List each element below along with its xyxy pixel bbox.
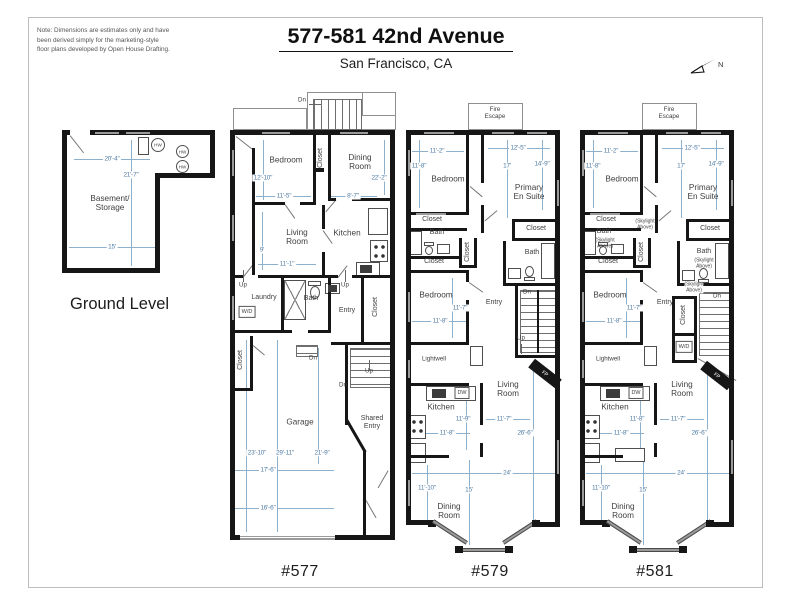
wall-segment bbox=[322, 205, 325, 229]
wall-segment bbox=[480, 383, 483, 425]
wall-segment bbox=[512, 238, 556, 241]
window bbox=[262, 132, 290, 134]
dim-living-h: 26'-6" bbox=[690, 430, 708, 437]
room-label-closet: Closet bbox=[700, 225, 720, 233]
room-label-closet: Closet bbox=[317, 148, 325, 168]
wall-segment bbox=[672, 360, 697, 363]
dim-basement-width: 20'-4" bbox=[103, 156, 121, 163]
dim-dining-h: 22'-2" bbox=[370, 175, 388, 182]
room-label-primary-581: Primary En Suite bbox=[688, 183, 719, 201]
washer-dryer: W/D bbox=[676, 341, 693, 353]
wall-segment bbox=[655, 135, 658, 183]
fixture bbox=[583, 443, 600, 463]
fixture bbox=[524, 277, 535, 281]
fixture bbox=[470, 346, 483, 366]
room-label-bath: Bath bbox=[430, 229, 444, 237]
wall-segment bbox=[459, 238, 462, 268]
wall-segment bbox=[654, 443, 657, 457]
wall-segment bbox=[390, 130, 395, 540]
room-label-bath: Bath bbox=[697, 248, 711, 256]
dim-primary-h2: 14'-9" bbox=[707, 161, 725, 168]
dim-garage-h1: 23'-10" bbox=[246, 450, 267, 457]
wall-segment bbox=[694, 296, 697, 362]
dim-living-h: 9' bbox=[258, 247, 265, 254]
window bbox=[416, 213, 446, 215]
window bbox=[232, 296, 234, 320]
dimension-line bbox=[533, 365, 534, 520]
wall-segment bbox=[580, 130, 585, 525]
fireplace-label: FP bbox=[713, 371, 722, 380]
wall-segment bbox=[532, 520, 540, 527]
wall-segment bbox=[503, 241, 506, 286]
fixture bbox=[368, 208, 388, 235]
stairs bbox=[699, 292, 730, 356]
wall-segment bbox=[328, 135, 331, 198]
window bbox=[232, 215, 234, 241]
fixture bbox=[370, 240, 388, 262]
page-subtitle: San Francisco, CA bbox=[340, 56, 453, 71]
fixture bbox=[437, 244, 450, 254]
fixture bbox=[606, 389, 620, 398]
wall-segment bbox=[252, 148, 255, 275]
fixture bbox=[425, 246, 433, 255]
room-label-bedroom-581: Bedroom bbox=[605, 174, 638, 183]
fixture bbox=[432, 389, 446, 398]
north-arrow-icon bbox=[690, 56, 718, 76]
dim-primary-w: 12'-5" bbox=[683, 145, 701, 152]
wall-segment bbox=[331, 342, 395, 345]
stair-label-dn: Dn bbox=[309, 356, 317, 363]
wall-segment bbox=[230, 275, 243, 278]
dim-primary-h2: 14'-9" bbox=[533, 161, 551, 168]
dim-width-total: 24' bbox=[676, 470, 687, 477]
dim-primary-w: 12'-5" bbox=[509, 145, 527, 152]
hw-heater-label: HW bbox=[179, 164, 187, 169]
dim-primary-h1: 17' bbox=[502, 163, 513, 170]
fixture bbox=[682, 270, 695, 281]
wall-segment bbox=[648, 238, 651, 268]
fixture bbox=[644, 346, 657, 366]
room-label-bath: Bath bbox=[525, 249, 539, 257]
north-label: N bbox=[718, 60, 723, 69]
dim-dining-w2: 15' bbox=[638, 487, 649, 494]
wall-segment bbox=[583, 270, 641, 273]
wall-segment bbox=[629, 546, 637, 553]
room-label-garage: Garage bbox=[286, 417, 313, 426]
dim-basement-height: 21'-7" bbox=[122, 172, 140, 179]
room-label-closet: Closet bbox=[598, 258, 618, 266]
hw-heater-label: HW bbox=[179, 149, 187, 154]
wall-segment bbox=[481, 135, 484, 183]
fixture bbox=[138, 137, 149, 155]
wall-segment bbox=[672, 333, 697, 336]
wall-segment bbox=[409, 455, 449, 458]
dim-living-w: 11'-1" bbox=[278, 261, 296, 268]
wall-segment bbox=[686, 219, 730, 222]
window bbox=[492, 132, 514, 134]
wall-segment bbox=[409, 342, 469, 345]
dimension-line bbox=[234, 508, 334, 509]
wall-segment bbox=[655, 205, 658, 233]
wall-segment bbox=[583, 383, 643, 386]
north-arrow: N bbox=[690, 56, 718, 81]
wall-segment bbox=[633, 238, 636, 268]
window bbox=[590, 213, 620, 215]
dim-living-h: 26'-6" bbox=[516, 430, 534, 437]
room-label-bath: Bath bbox=[597, 228, 611, 236]
wall-segment bbox=[459, 265, 477, 268]
room-label-closet: Closet bbox=[372, 297, 380, 317]
fixture bbox=[409, 443, 426, 463]
dim-kitchen-w: 11'-8" bbox=[612, 430, 630, 437]
wall-segment bbox=[230, 130, 235, 540]
room-label-bedroom-579: Bedroom bbox=[431, 174, 464, 183]
unit-label-579: #579 bbox=[471, 563, 509, 581]
dim-kitchen-h: 11'-9" bbox=[454, 416, 472, 423]
wall-segment bbox=[537, 290, 539, 353]
room-label-closet: Closet bbox=[638, 242, 646, 262]
dimension-line bbox=[318, 348, 319, 464]
wall-segment bbox=[480, 443, 483, 457]
decor bbox=[70, 130, 90, 135]
fixture bbox=[284, 280, 306, 320]
room-label-entry-579: Entry bbox=[486, 299, 502, 307]
dimension-line bbox=[601, 465, 602, 520]
wall-segment bbox=[686, 238, 730, 241]
dim-kitchen-w: 11'-8" bbox=[438, 430, 456, 437]
wall-segment bbox=[300, 202, 316, 205]
dim-basement-width2: 15' bbox=[107, 244, 118, 251]
wall-segment bbox=[583, 455, 623, 458]
dim-dining-w1: 11'-10" bbox=[591, 485, 612, 492]
wall-segment bbox=[503, 283, 560, 286]
wall-segment bbox=[505, 546, 513, 553]
window bbox=[557, 180, 559, 206]
skylight-note: (Skylight Above) bbox=[694, 258, 713, 269]
fire-escape-label: Fire Escape bbox=[485, 107, 506, 121]
structure-outline bbox=[362, 92, 396, 116]
direction-arrow bbox=[309, 104, 321, 105]
hw-heater-label: HW bbox=[154, 142, 162, 147]
fixture bbox=[508, 268, 521, 279]
wall-segment bbox=[352, 275, 395, 278]
window bbox=[408, 480, 410, 506]
dimension-line bbox=[593, 140, 594, 208]
room-label-closet: Closet bbox=[237, 350, 245, 370]
wall-segment bbox=[633, 265, 651, 268]
wall-segment bbox=[406, 130, 411, 525]
skylight-note: (Skylight Above) bbox=[595, 238, 614, 249]
window bbox=[240, 538, 335, 540]
window bbox=[731, 180, 733, 206]
wall-segment bbox=[361, 278, 364, 345]
dim-bedroom2-w: 11'-8" bbox=[431, 318, 449, 325]
dim-dining-w: 8'-7" bbox=[346, 193, 361, 200]
wall-segment bbox=[230, 330, 292, 333]
dim-bedroom2-w: 11'-8" bbox=[605, 318, 623, 325]
wall-segment bbox=[583, 342, 643, 345]
wall-segment bbox=[155, 175, 160, 273]
wall-segment bbox=[255, 202, 285, 205]
wall-segment bbox=[308, 330, 331, 333]
dimension-line bbox=[277, 340, 278, 532]
dim-primary-h1: 17' bbox=[676, 163, 687, 170]
stair-label-up: Up bbox=[517, 336, 525, 343]
wall-segment bbox=[466, 270, 469, 282]
dimension-line bbox=[469, 460, 470, 545]
room-label-shared-entry: Shared Entry bbox=[361, 415, 384, 431]
dim-dining-w2: 15' bbox=[464, 487, 475, 494]
wall-segment bbox=[512, 219, 515, 241]
dimension-line bbox=[707, 365, 708, 520]
wall-segment bbox=[686, 219, 689, 241]
wall-segment bbox=[515, 285, 518, 358]
skylight-note: (Skylight Above) bbox=[684, 282, 703, 293]
window bbox=[408, 292, 410, 322]
wall-segment bbox=[363, 450, 366, 540]
window bbox=[598, 132, 628, 134]
stair-label-dn: Dn bbox=[298, 98, 306, 105]
plan-title-ground: Ground Level bbox=[70, 295, 169, 313]
dim-living-w: 11'-7" bbox=[669, 416, 687, 423]
fixture bbox=[360, 265, 372, 273]
wall-segment bbox=[62, 268, 160, 273]
structure-outline bbox=[233, 108, 307, 130]
room-label-dining-581: Dining Room bbox=[611, 502, 634, 520]
room-label-lightwell: Lightwell bbox=[596, 357, 620, 364]
room-label-laundry: Laundry bbox=[251, 294, 276, 302]
direction-arrow bbox=[521, 344, 522, 354]
wall-segment bbox=[512, 219, 556, 222]
dimension-line bbox=[586, 473, 730, 474]
room-label-living-579: Living Room bbox=[497, 380, 519, 398]
room-label-living-581: Living Room bbox=[671, 380, 693, 398]
wall-segment bbox=[640, 135, 643, 215]
dimension-line bbox=[427, 465, 428, 520]
dim-bedroom2-h: 11'-7" bbox=[451, 305, 469, 312]
dim-width-total: 24' bbox=[502, 470, 513, 477]
wall-segment bbox=[281, 278, 284, 332]
dim-bedroom-w: 11'-2" bbox=[428, 148, 446, 155]
room-label-living-577: Living Room bbox=[286, 228, 308, 246]
bay-window bbox=[463, 548, 507, 552]
dim-bedroom2-h: 11'-7" bbox=[625, 305, 643, 312]
dim-garage-h3: 21'-9" bbox=[313, 450, 331, 457]
window bbox=[582, 480, 584, 506]
fixture bbox=[715, 243, 729, 279]
dim-bedroom-w: 11'-5" bbox=[275, 193, 293, 200]
washer-dryer: W/D bbox=[239, 306, 256, 318]
window bbox=[424, 132, 454, 134]
room-label-entry-577: Entry bbox=[339, 307, 355, 315]
room-label-bedroom2-579: Bedroom bbox=[419, 290, 452, 299]
dimension-line bbox=[263, 140, 264, 200]
dim-living-w: 11'-7" bbox=[495, 416, 513, 423]
wall-segment bbox=[328, 198, 336, 201]
page-header: 577-581 42nd Avenue San Francisco, CA bbox=[0, 24, 792, 73]
step-label-up: Up bbox=[341, 283, 349, 290]
wall-segment bbox=[481, 205, 484, 233]
direction-arrow bbox=[345, 270, 346, 282]
wall-segment bbox=[515, 355, 560, 358]
room-label-primary-579: Primary En Suite bbox=[514, 183, 545, 201]
window bbox=[666, 132, 688, 134]
wall-segment bbox=[409, 383, 469, 386]
stair-label-dn: Dn bbox=[523, 290, 531, 297]
room-label-basement: Basement/ Storage bbox=[90, 194, 129, 212]
dim-bedroom-h: 11'-8" bbox=[584, 163, 602, 170]
bay-window bbox=[637, 548, 681, 552]
room-label-bath-577: Bath bbox=[304, 295, 318, 303]
wall-segment bbox=[455, 546, 463, 553]
dimension-line bbox=[419, 140, 420, 208]
wall-segment bbox=[677, 241, 680, 286]
window bbox=[95, 132, 119, 134]
room-label-dining-577: Dining Room bbox=[348, 153, 371, 171]
unit-label-581: #581 bbox=[636, 563, 674, 581]
skylight-note: (Skylight Above) bbox=[635, 219, 654, 230]
room-label-closet: Closet bbox=[464, 242, 472, 262]
wall-segment bbox=[654, 383, 657, 425]
room-label-kitchen-577: Kitchen bbox=[333, 228, 360, 237]
wall-segment bbox=[313, 168, 324, 172]
fixture bbox=[541, 243, 555, 279]
fire-escape-label: Fire Escape bbox=[659, 107, 680, 121]
fixture bbox=[525, 266, 534, 277]
stair-label-dn: Dn bbox=[339, 383, 347, 390]
dimension-line bbox=[384, 140, 385, 195]
window bbox=[408, 150, 410, 176]
dim-bedroom-h: 12'-10" bbox=[252, 175, 273, 182]
dim-dining-w1: 11'-10" bbox=[417, 485, 438, 492]
stair-label-up: Up bbox=[365, 369, 373, 376]
fixture bbox=[699, 268, 708, 279]
window bbox=[126, 132, 150, 134]
room-label-lightwell: Lightwell bbox=[422, 357, 446, 364]
wall-segment bbox=[155, 173, 215, 178]
window bbox=[232, 150, 234, 176]
wall-segment bbox=[230, 388, 253, 391]
room-label-closet: Closet bbox=[424, 258, 444, 266]
dimension-line bbox=[412, 473, 556, 474]
dim-kitchen-h: 11'-8" bbox=[628, 416, 646, 423]
room-label-dining-579: Dining Room bbox=[437, 502, 460, 520]
window bbox=[557, 440, 559, 474]
window bbox=[340, 132, 368, 134]
wall-segment bbox=[466, 135, 469, 215]
window bbox=[582, 292, 584, 322]
room-label-kitchen-579: Kitchen bbox=[427, 402, 454, 411]
dishwasher: DW bbox=[455, 387, 470, 399]
page-title: 577-581 42nd Avenue bbox=[279, 24, 512, 52]
wall-segment bbox=[679, 546, 687, 553]
dim-garage-h2: 29'-11" bbox=[275, 450, 296, 457]
decor bbox=[691, 66, 704, 73]
dim-bedroom-h: 11'-8" bbox=[410, 163, 428, 170]
window bbox=[701, 132, 721, 134]
wall-segment bbox=[250, 336, 253, 390]
wall-segment bbox=[409, 270, 467, 273]
room-label-kitchen-581: Kitchen bbox=[601, 402, 628, 411]
dim-bedroom-w: 11'-2" bbox=[602, 148, 620, 155]
room-label-closet: Closet bbox=[526, 225, 546, 233]
direction-arrow bbox=[243, 270, 244, 282]
wall-segment bbox=[62, 130, 67, 273]
dim-garage-w1: 17'-6" bbox=[259, 467, 277, 474]
window bbox=[240, 536, 335, 538]
dimension-line bbox=[234, 470, 334, 471]
room-label-closet: Closet bbox=[680, 305, 688, 325]
fixture bbox=[328, 285, 337, 292]
room-label-closet: Closet bbox=[422, 216, 442, 224]
window bbox=[527, 132, 547, 134]
room-label-closet: Closet bbox=[596, 216, 616, 224]
dim-garage-w2: 16'-6" bbox=[259, 505, 277, 512]
room-label-entry-581: Entry bbox=[657, 299, 673, 307]
stair-label-dn: Dn bbox=[713, 294, 721, 301]
step-label-up: Up bbox=[239, 283, 247, 290]
wall-segment bbox=[706, 520, 714, 527]
wall-segment bbox=[474, 238, 477, 268]
wall-segment bbox=[583, 228, 641, 231]
dimension-line bbox=[246, 340, 247, 532]
window bbox=[731, 440, 733, 474]
wall-segment bbox=[258, 275, 338, 278]
window bbox=[582, 150, 584, 176]
dimension-line bbox=[507, 140, 508, 218]
room-label-bedroom-577: Bedroom bbox=[269, 155, 302, 164]
dimension-line bbox=[681, 140, 682, 218]
wall-segment bbox=[672, 296, 697, 299]
fireplace-label: FP bbox=[541, 369, 550, 378]
dimension-line bbox=[643, 460, 644, 545]
room-label-bedroom2-581: Bedroom bbox=[593, 290, 626, 299]
unit-label-577: #577 bbox=[281, 563, 319, 581]
dishwasher: DW bbox=[629, 387, 644, 399]
wall-segment bbox=[210, 130, 215, 178]
wall-segment bbox=[640, 270, 643, 282]
dimension-line bbox=[262, 212, 263, 270]
window bbox=[408, 360, 410, 378]
window bbox=[582, 360, 584, 378]
